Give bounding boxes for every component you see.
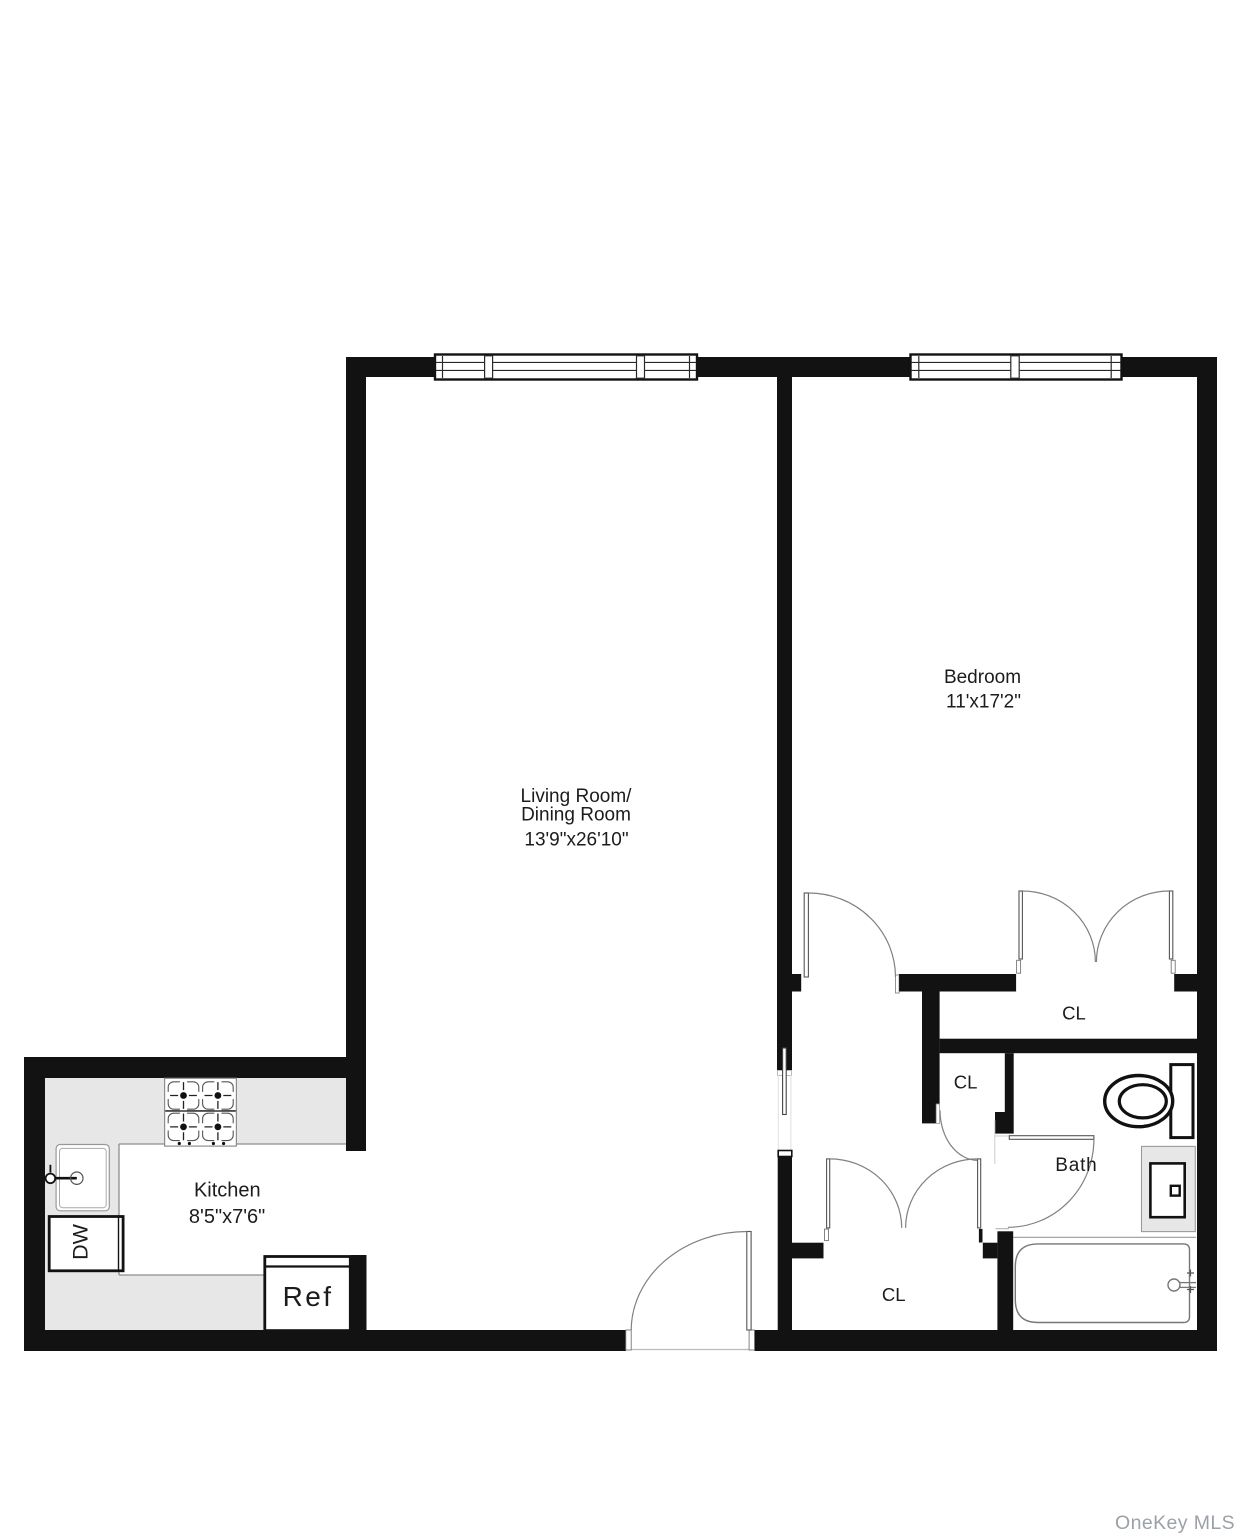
svg-text:Ref: Ref — [283, 1281, 334, 1312]
svg-text:11'x17'2": 11'x17'2" — [946, 692, 1021, 713]
svg-text:13'9"x26'10": 13'9"x26'10" — [524, 830, 628, 851]
svg-text:Dining Room: Dining Room — [521, 805, 631, 826]
svg-text:8'5"x7'6": 8'5"x7'6" — [189, 1206, 265, 1228]
svg-text:Kitchen: Kitchen — [194, 1180, 261, 1202]
svg-text:Bath: Bath — [1055, 1155, 1097, 1176]
svg-text:Bedroom: Bedroom — [944, 667, 1021, 688]
svg-text:OneKey MLS: OneKey MLS — [1115, 1512, 1235, 1534]
svg-text:CL: CL — [1062, 1002, 1086, 1023]
svg-text:DW: DW — [69, 1223, 93, 1260]
svg-text:CL: CL — [954, 1072, 978, 1093]
svg-text:CL: CL — [882, 1284, 906, 1305]
